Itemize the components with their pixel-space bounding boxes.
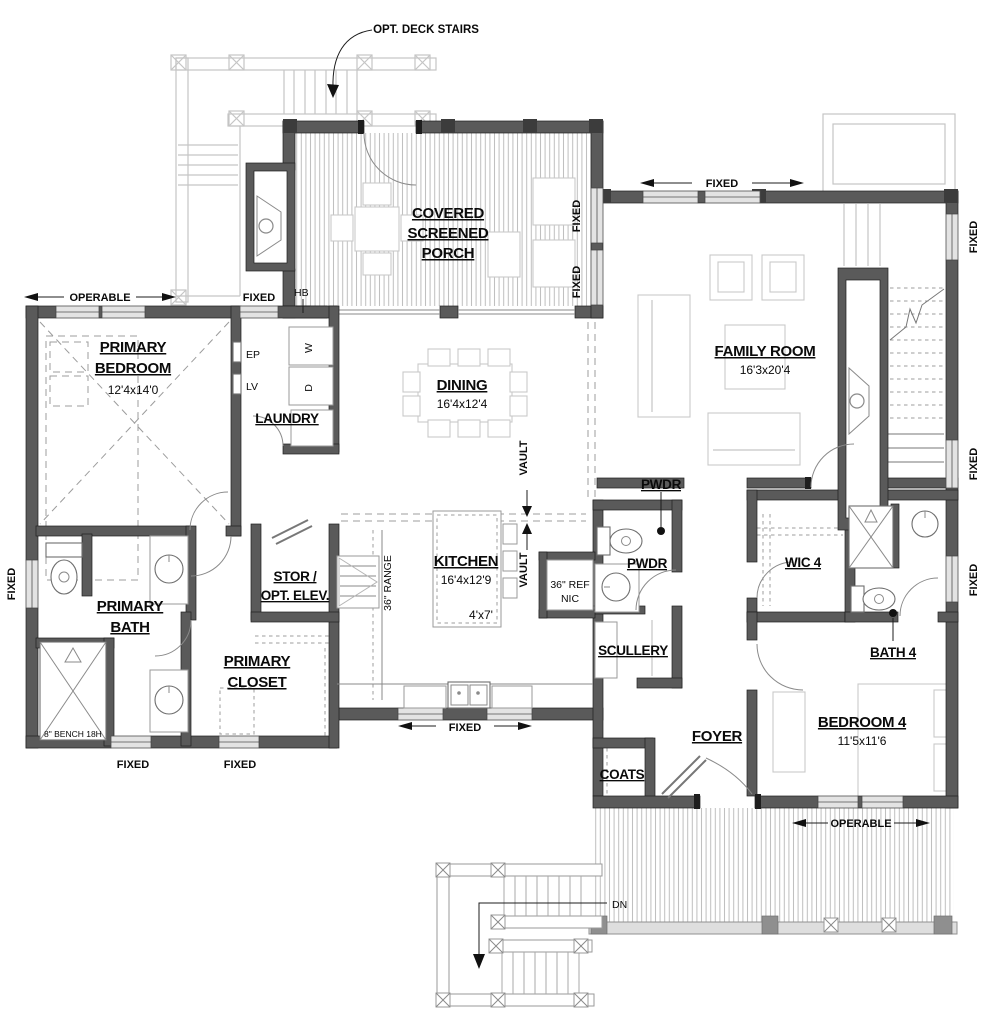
window-label-fixed-kitchen: FIXED — [449, 722, 481, 734]
window-label-fixed-bottom-2: FIXED — [224, 759, 256, 771]
window-label-fixed-family: FIXED — [706, 178, 738, 190]
window-label-fixed-porch-2: FIXED — [571, 266, 583, 298]
kitchen-label: KITCHEN — [434, 553, 499, 570]
opt-deck-stairs-label: OPT. DECK STAIRS — [373, 24, 479, 36]
pwdr-label-1: PWDR — [641, 477, 682, 492]
dishwasher — [404, 686, 446, 708]
family-room-label: FAMILY ROOM — [715, 343, 816, 360]
floor-plan-page: OPT. DECK STAIRS OPERABLE FIXED HB COVER… — [0, 0, 1002, 1024]
toilet-icon — [597, 527, 610, 555]
window-label-operable-bottom: OPERABLE — [830, 818, 891, 830]
primary-closet-label-1: PRIMARY — [224, 653, 291, 670]
vault-label-2: VAULT — [518, 552, 530, 587]
vault-arrow-down — [522, 506, 532, 517]
porch-label-3: PORCH — [422, 245, 475, 262]
trash-cabinet — [492, 686, 532, 708]
foyer-label: FOYER — [692, 728, 743, 745]
bath4-leader-dot — [889, 609, 897, 617]
ref-label-1: 36" REF — [550, 579, 589, 591]
bath4-fixtures — [849, 506, 938, 612]
island-dim: 4'x7' — [469, 608, 493, 622]
primary-bedroom-label-2: BEDROOM — [95, 360, 171, 377]
window-label-fixed-laundry: FIXED — [243, 292, 275, 304]
pwdr-leader-dot — [657, 527, 665, 535]
opt-deck-stairs-leader — [333, 30, 372, 88]
bench-label: 8" BENCH 18H — [44, 729, 102, 739]
primary-bath-label-1: PRIMARY — [97, 598, 164, 615]
family-furniture-ghost — [638, 255, 804, 465]
porch-label-2: SCREENED — [408, 225, 489, 242]
family-fireplace-icon — [838, 268, 888, 530]
bedroom4-label: BEDROOM 4 — [818, 714, 907, 731]
floor-plan-drawing: OPT. DECK STAIRS OPERABLE FIXED HB COVER… — [0, 0, 1002, 1024]
toilet-icon — [46, 543, 82, 557]
window-label-fixed-porch-1: FIXED — [571, 200, 583, 232]
window-label-fixed-right-low: FIXED — [968, 564, 980, 596]
window-label-fixed-right-top: FIXED — [968, 221, 980, 253]
front-stairs — [436, 863, 602, 1007]
stair-post-icon — [436, 863, 588, 1007]
scullery-label: SCULLERY — [598, 643, 668, 658]
laundry-label: LAUNDRY — [255, 411, 319, 426]
outdoor-fireplace-icon — [246, 163, 295, 271]
primary-bath-label-2: BATH — [110, 619, 149, 636]
kitchen-dim: 16'4x12'9 — [441, 573, 492, 587]
kitchen-casework — [337, 511, 593, 708]
washer-label: W — [303, 343, 315, 353]
vault-arrow-up — [522, 523, 532, 534]
coats-label: COATS — [600, 767, 645, 782]
window-label-fixed-left: FIXED — [6, 568, 18, 600]
bath4-label: BATH 4 — [870, 645, 917, 660]
dryer-label: D — [303, 384, 315, 392]
dining-label: DINING — [437, 377, 488, 394]
stor-label-1: STOR / — [274, 569, 318, 584]
primary-bedroom-label-1: PRIMARY — [100, 339, 167, 356]
family-room-dim: 16'3x20'4 — [740, 363, 791, 377]
toilet-icon — [851, 586, 864, 612]
window-label-operable-top: OPERABLE — [69, 292, 130, 304]
chimney-ghost — [823, 114, 955, 194]
bedroom4-dim: 11'5x11'6 — [838, 734, 887, 748]
front-door-leaf — [662, 756, 700, 794]
porch-label-1: COVERED — [412, 205, 485, 222]
primary-closet-label-2: CLOSET — [227, 674, 286, 691]
hose-bib-label: HB — [294, 287, 309, 299]
primary-bedroom-dim: 12'4x14'0 — [108, 383, 159, 397]
window-label-fixed-right-mid: FIXED — [968, 448, 980, 480]
wic4-label: WIC 4 — [785, 555, 822, 570]
stor-door-leaf — [272, 520, 308, 538]
ref-label-2: NIC — [561, 593, 580, 605]
pwdr-label-2: PWDR — [627, 556, 668, 571]
stor-label-2: OPT. ELEV. — [261, 588, 330, 603]
ep-label: EP — [246, 349, 260, 361]
window-label-fixed-bottom-1: FIXED — [117, 759, 149, 771]
vault-label-1: VAULT — [518, 440, 530, 475]
dining-dim: 16'4x12'4 — [437, 397, 488, 411]
dn-label: DN — [612, 899, 627, 911]
range-label: 36" RANGE — [382, 555, 394, 611]
lv-label: LV — [246, 381, 258, 393]
kitchen-sink — [448, 682, 490, 708]
